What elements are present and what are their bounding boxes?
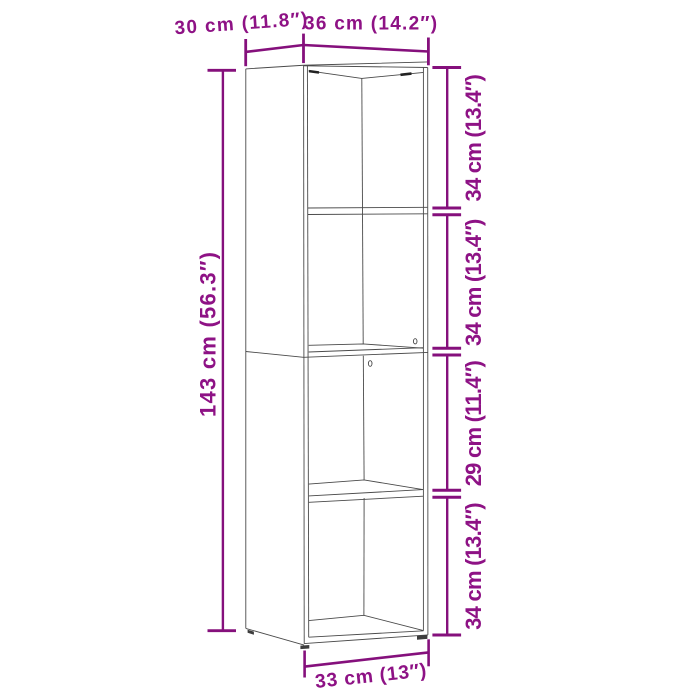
svg-text:29 cm (11.4″): 29 cm (11.4″) [461, 360, 486, 486]
svg-text:34 cm (13.4″): 34 cm (13.4″) [461, 219, 486, 346]
svg-text:34 cm (13.4″): 34 cm (13.4″) [461, 503, 486, 630]
svg-text:143 cm (56.3″): 143 cm (56.3″) [195, 251, 220, 417]
svg-text:34 cm (13.4″): 34 cm (13.4″) [461, 74, 486, 201]
svg-text:36 cm (14.2″): 36 cm (14.2″) [304, 14, 438, 35]
